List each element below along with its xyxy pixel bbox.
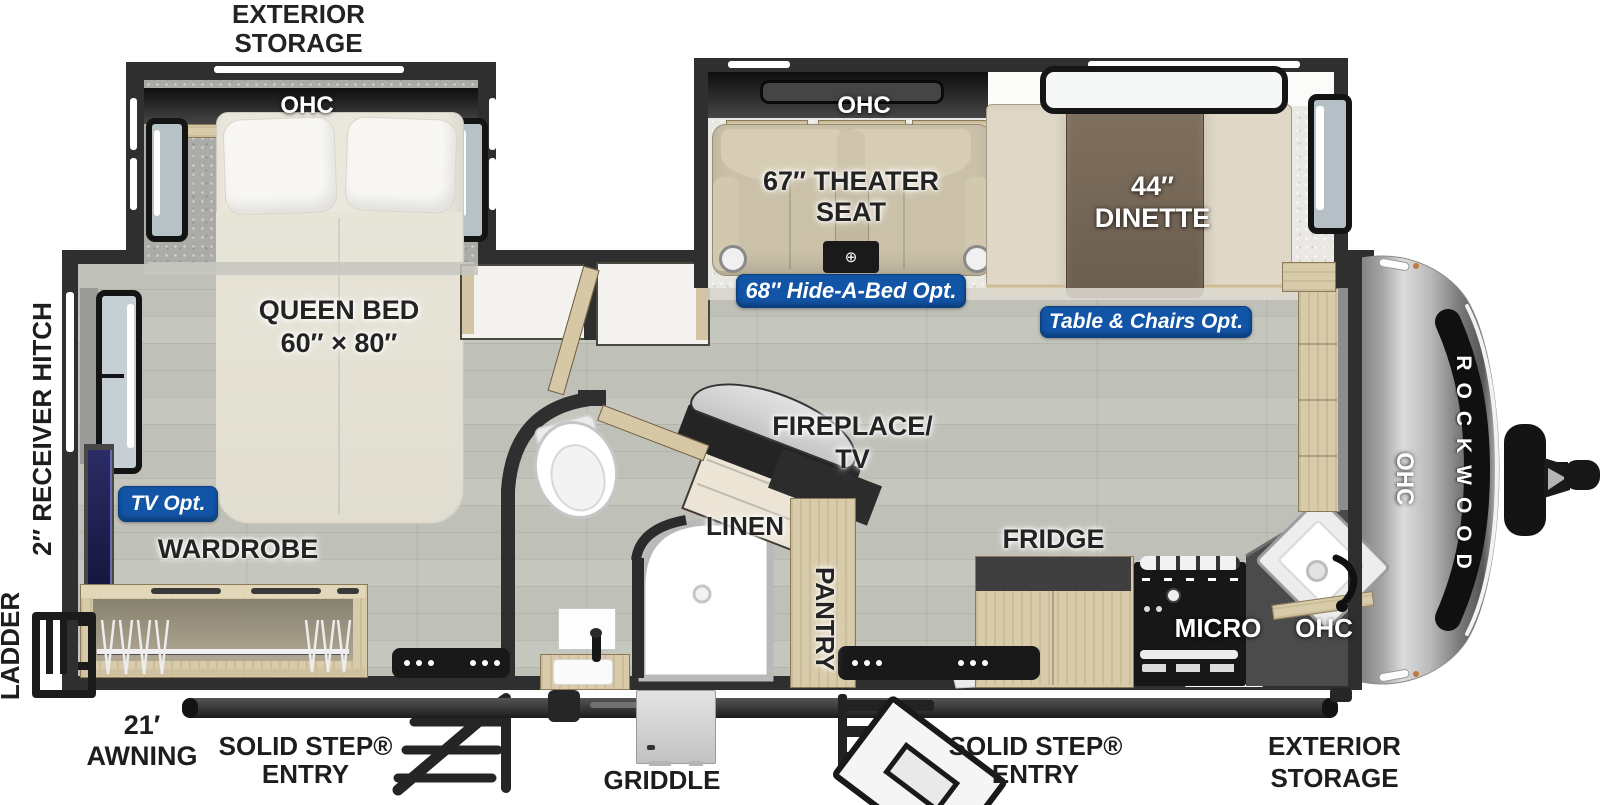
kitchen-ohc-label: OHC bbox=[1284, 614, 1364, 644]
rockwood-brand-label: ROCKWOOD bbox=[1451, 318, 1475, 618]
micro-label: MICRO bbox=[1168, 614, 1268, 644]
ladder-label: LADDER bbox=[0, 588, 24, 704]
wardrobe-hangers bbox=[102, 620, 350, 674]
label-line: 60″ × 80″ bbox=[216, 327, 462, 360]
label-line: EXTERIOR bbox=[1232, 730, 1437, 762]
label-line: EXTERIOR bbox=[186, 0, 411, 29]
label-line: 67″ THEATER bbox=[712, 166, 990, 197]
label-line: STORAGE bbox=[186, 29, 411, 58]
entry-right-label: SOLID STEP® ENTRY bbox=[928, 732, 1143, 788]
label-line: SOLID STEP® bbox=[198, 732, 413, 760]
receiver-hitch-label: 2″ RECEIVER HITCH bbox=[28, 294, 58, 564]
kitchen-faucet-base bbox=[1336, 600, 1348, 612]
table-chairs-option-badge: Table & Chairs Opt. bbox=[1040, 306, 1252, 338]
exterior-storage-label-top: EXTERIOR STORAGE bbox=[186, 0, 411, 58]
dinette-label: 44″ DINETTE bbox=[1080, 170, 1225, 234]
entry-left-label: SOLID STEP® ENTRY bbox=[198, 732, 413, 788]
queen-bed-label: QUEEN BED 60″ × 80″ bbox=[216, 294, 462, 360]
fridge-label: FRIDGE bbox=[975, 524, 1132, 555]
hide-a-bed-option-badge: 68″ Hide-A-Bed Opt. bbox=[736, 274, 966, 308]
bedroom-ohc-label: OHC bbox=[267, 92, 347, 120]
label-line: 44″ bbox=[1080, 170, 1225, 202]
griddle-label: GRIDDLE bbox=[592, 766, 732, 796]
label-line: ENTRY bbox=[928, 760, 1143, 788]
tv-option-badge: TV Opt. bbox=[118, 486, 218, 522]
kitchen-faucet bbox=[1336, 558, 1354, 606]
label-line: SOLID STEP® bbox=[928, 732, 1143, 760]
theater-seat-label: 67″ THEATER SEAT bbox=[712, 166, 990, 228]
wardrobe-label: WARDROBE bbox=[138, 534, 338, 565]
theater-ohc-label: OHC bbox=[824, 92, 904, 120]
label-line: FIREPLACE/ bbox=[770, 410, 935, 443]
label-line: ENTRY bbox=[198, 760, 413, 788]
shapes-over-layer bbox=[0, 0, 1600, 805]
label-line: DINETTE bbox=[1080, 202, 1225, 234]
linen-label: LINEN bbox=[695, 512, 795, 542]
exterior-storage-label-bottom: EXTERIOR STORAGE bbox=[1232, 730, 1437, 794]
front-ohc-label: OHC bbox=[1390, 434, 1418, 524]
label-line: QUEEN BED bbox=[216, 294, 462, 327]
label-line: STORAGE bbox=[1232, 762, 1437, 794]
label-line: SEAT bbox=[712, 197, 990, 228]
label-line: TV bbox=[770, 443, 935, 476]
fireplace-tv-label: FIREPLACE/ TV bbox=[770, 410, 935, 476]
pantry-label: PANTRY bbox=[809, 544, 839, 694]
floorplan-canvas: ⊕ bbox=[0, 0, 1600, 805]
